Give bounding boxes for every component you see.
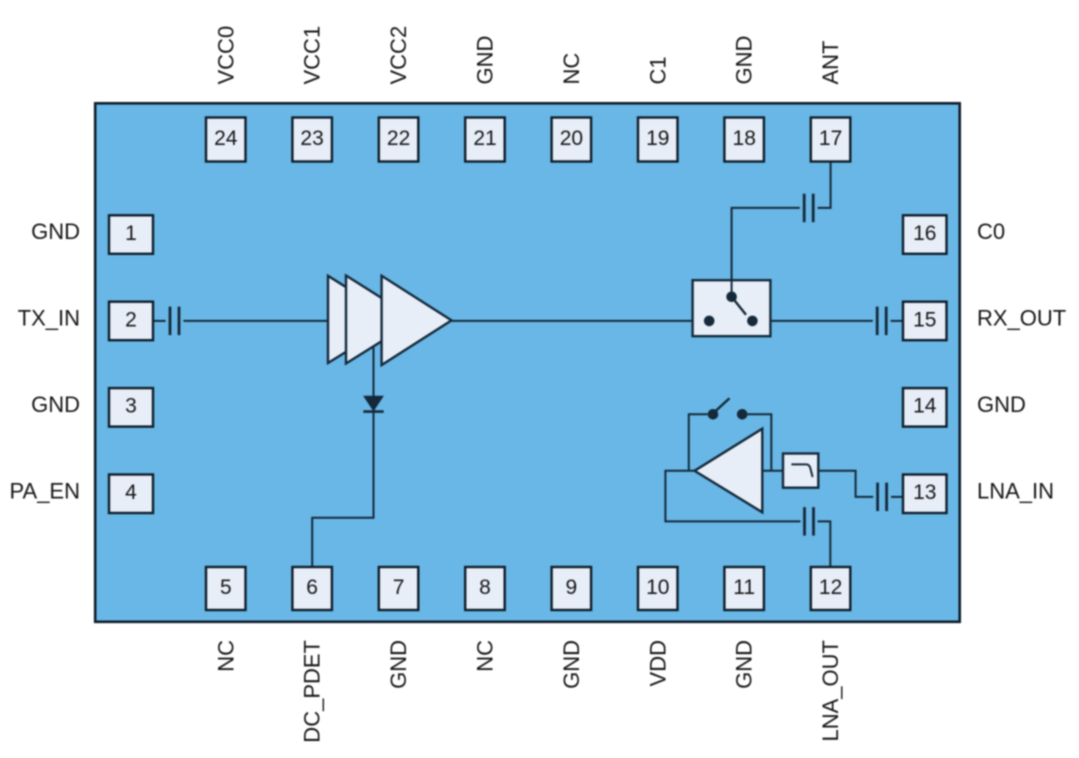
svg-text:5: 5 <box>220 576 232 599</box>
svg-text:3: 3 <box>125 395 137 418</box>
svg-text:LNA_IN: LNA_IN <box>977 478 1054 503</box>
svg-text:PA_EN: PA_EN <box>9 478 80 503</box>
svg-text:4: 4 <box>125 481 137 504</box>
svg-text:GND: GND <box>559 640 584 689</box>
svg-text:21: 21 <box>473 127 496 150</box>
svg-text:GND: GND <box>31 392 80 417</box>
svg-text:NC: NC <box>213 640 238 672</box>
svg-text:7: 7 <box>393 576 405 599</box>
svg-text:9: 9 <box>566 576 578 599</box>
svg-text:C0: C0 <box>977 219 1005 244</box>
svg-text:VCC1: VCC1 <box>300 26 325 85</box>
svg-text:8: 8 <box>479 576 491 599</box>
svg-text:VCC2: VCC2 <box>386 26 411 85</box>
svg-text:TX_IN: TX_IN <box>18 306 80 331</box>
svg-text:VCC0: VCC0 <box>213 26 238 85</box>
svg-text:6: 6 <box>306 576 318 599</box>
svg-text:12: 12 <box>819 576 842 599</box>
svg-text:10: 10 <box>646 576 669 599</box>
svg-text:1: 1 <box>125 222 137 245</box>
svg-text:GND: GND <box>732 640 757 689</box>
svg-text:15: 15 <box>913 308 936 331</box>
svg-text:19: 19 <box>646 127 669 150</box>
svg-text:NC: NC <box>473 640 498 672</box>
svg-text:GND: GND <box>31 219 80 244</box>
svg-text:ANT: ANT <box>818 41 843 85</box>
svg-text:16: 16 <box>913 222 936 245</box>
svg-text:23: 23 <box>300 127 323 150</box>
svg-text:GND: GND <box>977 392 1026 417</box>
svg-text:DC_PDET: DC_PDET <box>300 640 325 743</box>
svg-text:13: 13 <box>913 481 936 504</box>
svg-text:GND: GND <box>732 36 757 85</box>
svg-text:LNA_OUT: LNA_OUT <box>818 640 843 741</box>
svg-text:17: 17 <box>819 127 842 150</box>
svg-text:C1: C1 <box>645 56 670 84</box>
svg-text:VDD: VDD <box>645 640 670 686</box>
svg-text:14: 14 <box>913 395 937 418</box>
svg-text:22: 22 <box>387 127 410 150</box>
svg-text:GND: GND <box>386 640 411 689</box>
svg-text:18: 18 <box>733 127 756 150</box>
svg-text:NC: NC <box>559 53 584 85</box>
svg-text:11: 11 <box>733 576 755 599</box>
svg-text:GND: GND <box>473 36 498 85</box>
svg-text:20: 20 <box>560 127 583 150</box>
svg-text:2: 2 <box>125 308 137 331</box>
svg-text:RX_OUT: RX_OUT <box>977 306 1066 331</box>
svg-text:24: 24 <box>214 127 238 150</box>
